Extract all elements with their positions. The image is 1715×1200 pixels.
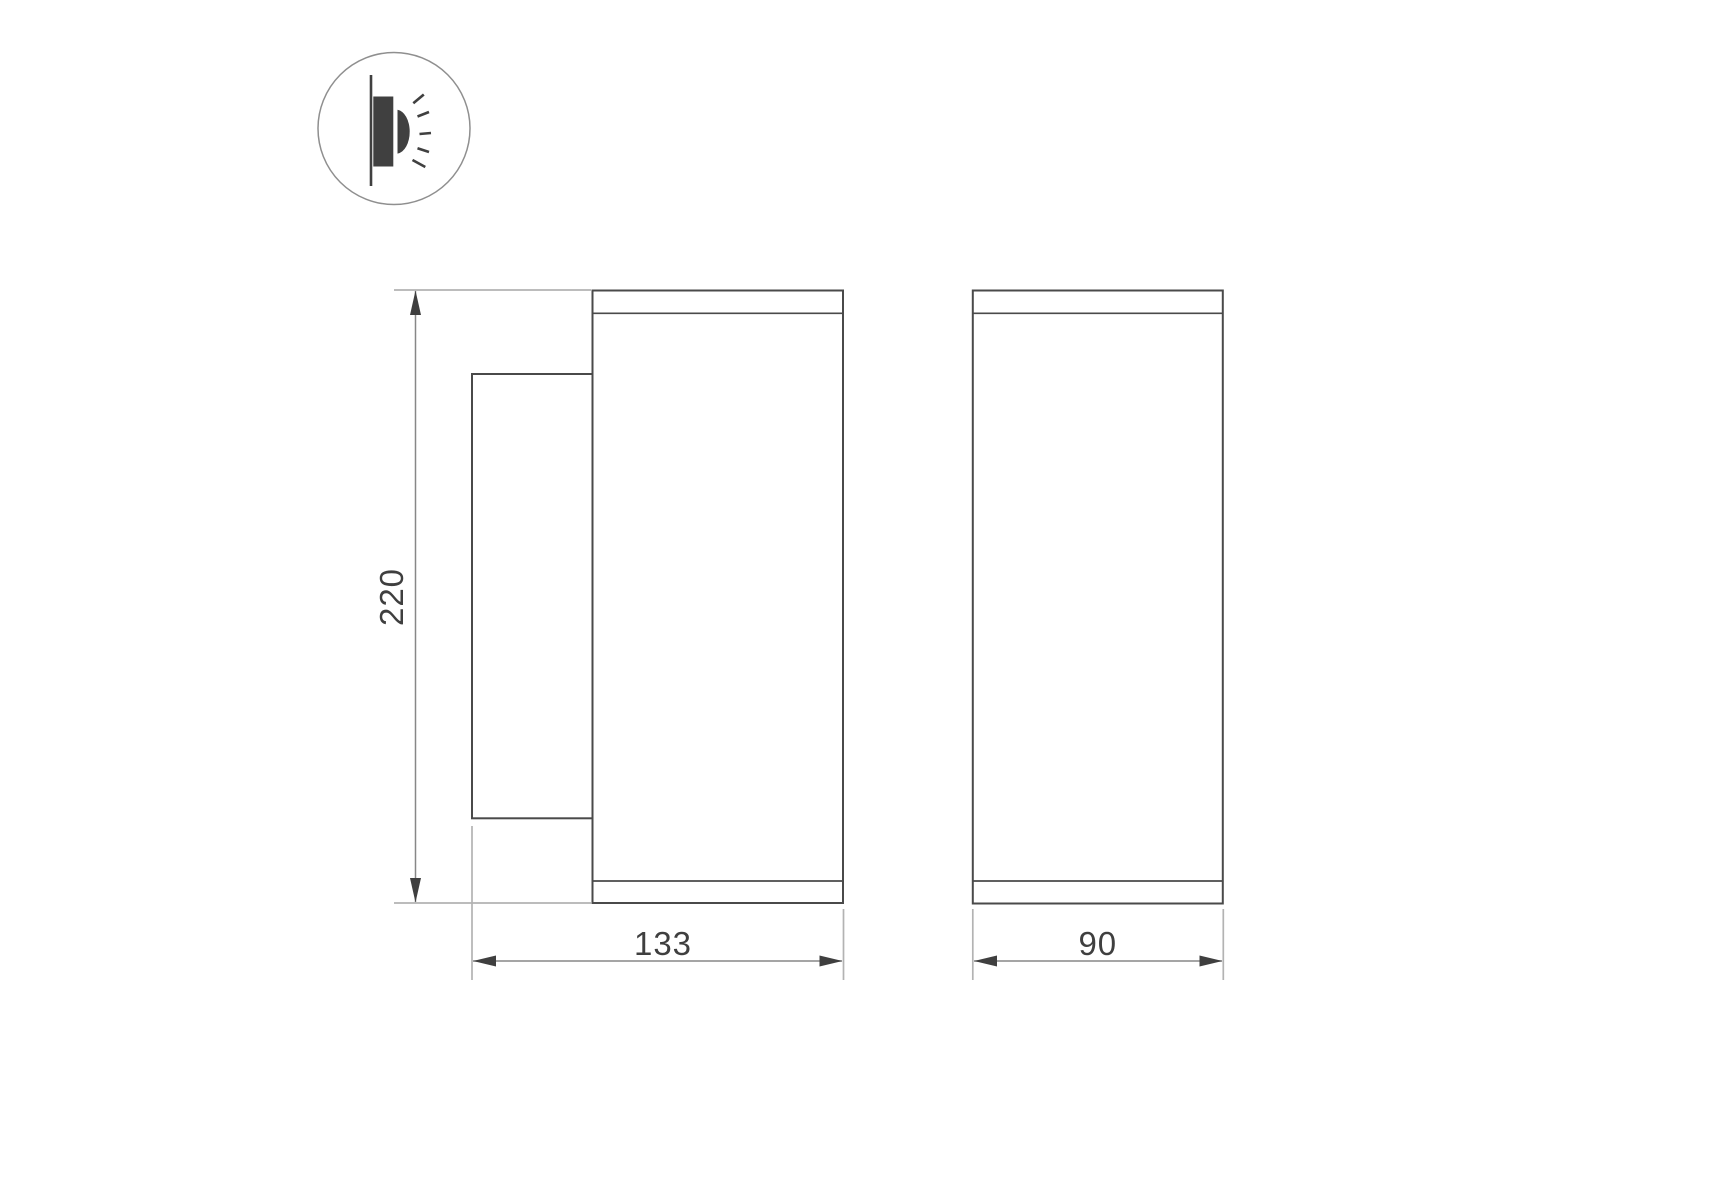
front-view [973,291,1223,904]
depth-dimension-label: 133 [634,925,692,962]
front-view-body-outline [973,291,1223,904]
icon-light-rays [413,95,432,168]
depth-dimension-arrow-right [820,956,843,967]
icon-fixture-body [373,97,393,167]
icon-light-ray [418,148,430,152]
width-dimension-label: 90 [1078,925,1117,962]
depth-dimension-arrow-left [473,956,496,967]
icon-light-ray [420,133,432,134]
height-dimension: 220 [373,290,591,903]
side-view [472,291,843,904]
icon-light-ray [413,95,424,104]
dimension-drawing-canvas: 220 133 90 [0,0,1715,1200]
height-dimension-arrow-up [410,291,421,316]
icon-light-ray [413,160,426,167]
drawing-page: 220 133 90 [0,0,1715,1200]
height-dimension-label: 220 [373,568,410,626]
height-dimension-arrow-down [410,878,421,903]
width-dimension: 90 [973,909,1224,980]
side-view-backplate-outline [472,374,593,818]
icon-circle [318,53,470,205]
icon-light-ray [418,112,430,117]
width-dimension-arrow-right [1200,956,1223,967]
side-view-body-outline [593,291,844,904]
width-dimension-arrow-left [974,956,997,967]
wall-light-icon [318,53,470,205]
icon-light-dome [398,110,410,154]
